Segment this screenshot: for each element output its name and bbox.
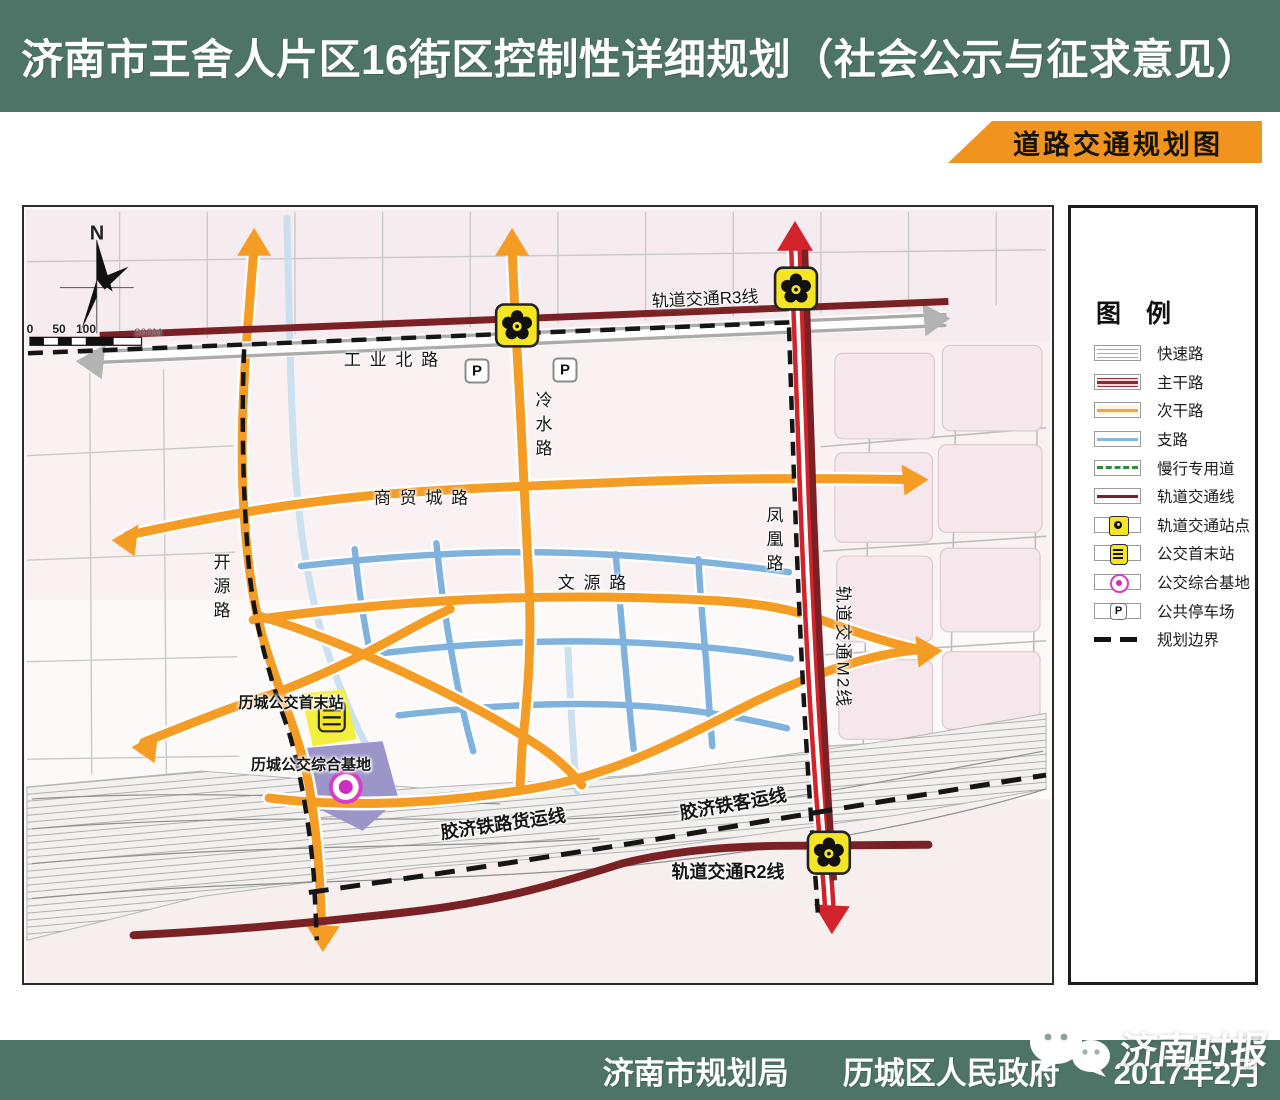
legend-item-rail-station: 轨道交通站点 xyxy=(1094,511,1249,540)
map-type-banner-label: 道路交通规划图 xyxy=(987,123,1223,162)
legend-label: 公共停车场 xyxy=(1157,600,1235,622)
label-fenghuang-road: 凤凰路 xyxy=(761,506,786,578)
boundary-swatch xyxy=(1094,631,1141,647)
label-gongye-north-road: 工 业 北 路 xyxy=(344,346,440,371)
scale-bar xyxy=(30,337,142,345)
legend-label: 快速路 xyxy=(1157,342,1204,364)
road-traffic-plan-map: N 0 50 100 200M 轨道交通R3线 工 业 北 路 冷水路 开源路 … xyxy=(22,205,1054,985)
watermark-text: 济南时报 xyxy=(1117,1020,1271,1074)
secondary-road-swatch xyxy=(1094,402,1141,418)
footer-agency-1: 济南市规划局 xyxy=(603,1048,789,1093)
scale-tick-0: 0 xyxy=(27,322,34,336)
page-title: 济南市王舍人片区16街区控制性详细规划（社会公示与征求意见） xyxy=(21,26,1259,87)
rail-line-swatch xyxy=(1094,488,1141,504)
legend-label: 轨道交通线 xyxy=(1157,485,1235,507)
north-label: N xyxy=(90,223,104,246)
main-road-swatch xyxy=(1094,374,1141,390)
scale-tick-100: 100 xyxy=(76,322,96,336)
legend-label: 慢行专用道 xyxy=(1157,457,1235,479)
parking-glyph: P xyxy=(1110,603,1127,620)
parking-swatch: P xyxy=(1094,603,1141,619)
bus-base-icon xyxy=(331,772,361,802)
label-rail-r2: 轨道交通R2线 xyxy=(671,858,784,884)
legend-item-rail-line: 轨道交通线 xyxy=(1094,482,1249,511)
planning-poster: 济南市王舍人片区16街区控制性详细规划（社会公示与征求意见） 道路交通规划图 xyxy=(0,0,1280,1100)
legend-item-main-road: 主干路 xyxy=(1094,368,1249,397)
wechat-icon xyxy=(1028,1016,1114,1078)
map-canvas xyxy=(24,207,1052,983)
label-rail-m2: 轨道交通M2线 xyxy=(833,586,858,709)
media-watermark: 济南时报 xyxy=(1028,1016,1268,1078)
label-bus-base: 历城公交综合基地 xyxy=(251,754,371,775)
label-kaiyuan-road: 开源路 xyxy=(208,553,233,625)
legend-label: 主干路 xyxy=(1157,371,1204,393)
legend-label: 支路 xyxy=(1157,428,1188,450)
header-band: 济南市王舍人片区16街区控制性详细规划（社会公示与征求意见） xyxy=(0,0,1280,112)
legend-item-boundary: 规划边界 xyxy=(1094,625,1249,654)
legend-label: 规划边界 xyxy=(1157,628,1219,650)
branch-road-swatch xyxy=(1094,431,1141,447)
bus-terminal-swatch xyxy=(1094,545,1141,561)
map-type-banner: 道路交通规划图 xyxy=(948,121,1262,163)
legend-label: 轨道交通站点 xyxy=(1157,514,1250,536)
legend-label: 次干路 xyxy=(1157,399,1204,421)
scale-unit: 200M xyxy=(134,327,162,339)
slow-lane-swatch xyxy=(1094,460,1141,476)
expressway-swatch xyxy=(1094,345,1141,361)
legend-item-secondary-road: 次干路 xyxy=(1094,396,1249,425)
legend-label: 公交综合基地 xyxy=(1157,571,1250,593)
label-lengshui-road: 冷水路 xyxy=(530,391,555,463)
legend-list: 快速路 主干路 次干路 支路 慢行专用道 轨道交通线 xyxy=(1094,339,1249,654)
legend-item-expressway: 快速路 xyxy=(1094,339,1249,368)
rail-station-swatch xyxy=(1094,517,1141,533)
label-bus-terminal: 历城公交首末站 xyxy=(238,692,343,713)
legend-panel: 图 例 快速路 主干路 次干路 支路 慢行专用道 xyxy=(1068,205,1258,985)
label-wenyuan-road: 文 源 路 xyxy=(558,569,628,594)
bus-base-swatch xyxy=(1094,574,1141,590)
label-rail-r3: 轨道交通R3线 xyxy=(651,282,759,312)
scale-tick-50: 50 xyxy=(52,322,65,336)
label-shangmao-road: 商 贸 城 路 xyxy=(374,484,470,509)
legend-item-parking: P 公共停车场 xyxy=(1094,596,1249,625)
legend-label: 公交首末站 xyxy=(1157,542,1235,564)
parking-icon: P xyxy=(465,359,490,384)
legend-item-bus-base: 公交综合基地 xyxy=(1094,568,1249,597)
parking-icon: P xyxy=(553,358,578,383)
legend-item-branch-road: 支路 xyxy=(1094,425,1249,454)
legend-title: 图 例 xyxy=(1096,294,1180,330)
legend-item-slow-lane: 慢行专用道 xyxy=(1094,453,1249,482)
legend-item-bus-terminal: 公交首末站 xyxy=(1094,539,1249,568)
